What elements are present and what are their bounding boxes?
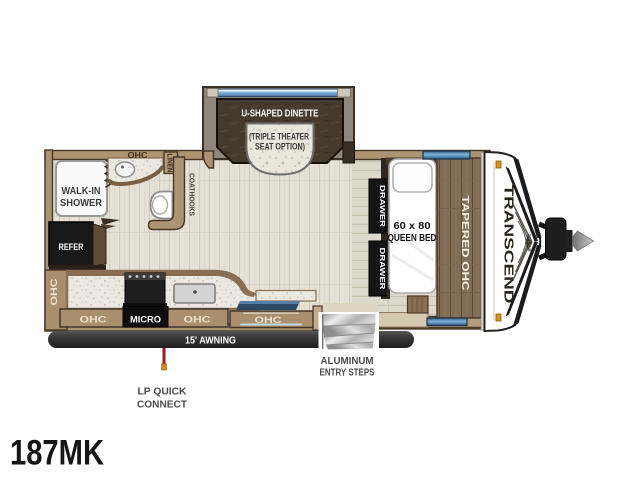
svg-text:U-SHAPED DINETTE: U-SHAPED DINETTE <box>242 109 319 120</box>
svg-text:187MK: 187MK <box>10 434 104 473</box>
svg-text:LINEN: LINEN <box>166 154 173 173</box>
svg-text:TAPERED OHC: TAPERED OHC <box>459 196 470 291</box>
svg-text:XPLOR: XPLOR <box>527 234 532 253</box>
svg-text:MICRO: MICRO <box>130 315 161 326</box>
svg-text:REFER: REFER <box>59 242 84 252</box>
svg-text:60 x 80: 60 x 80 <box>394 221 431 232</box>
svg-text:ENTRY STEPS: ENTRY STEPS <box>320 367 375 379</box>
svg-text:SEAT OPTION): SEAT OPTION) <box>255 142 305 153</box>
svg-text:WALK-IN: WALK-IN <box>62 185 101 197</box>
svg-text:15' AWNING: 15' AWNING <box>185 336 236 347</box>
svg-text:ALUMINUM: ALUMINUM <box>321 355 374 367</box>
svg-text:OHC: OHC <box>184 315 211 326</box>
svg-text:OHC: OHC <box>49 278 60 305</box>
svg-text:OHC: OHC <box>128 150 148 160</box>
svg-text:TRANSCEND: TRANSCEND <box>502 185 516 304</box>
svg-text:QUEEN BED: QUEEN BED <box>388 233 437 244</box>
svg-text:CONNECT: CONNECT <box>137 399 188 411</box>
svg-text:LP QUICK: LP QUICK <box>138 386 187 398</box>
svg-text:DRAWER: DRAWER <box>378 248 387 291</box>
svg-text:DRAWER: DRAWER <box>378 185 387 228</box>
svg-text:COATHOOKS: COATHOOKS <box>188 173 197 216</box>
svg-text:SHOWER: SHOWER <box>60 197 102 209</box>
svg-text:OHC: OHC <box>80 315 107 326</box>
